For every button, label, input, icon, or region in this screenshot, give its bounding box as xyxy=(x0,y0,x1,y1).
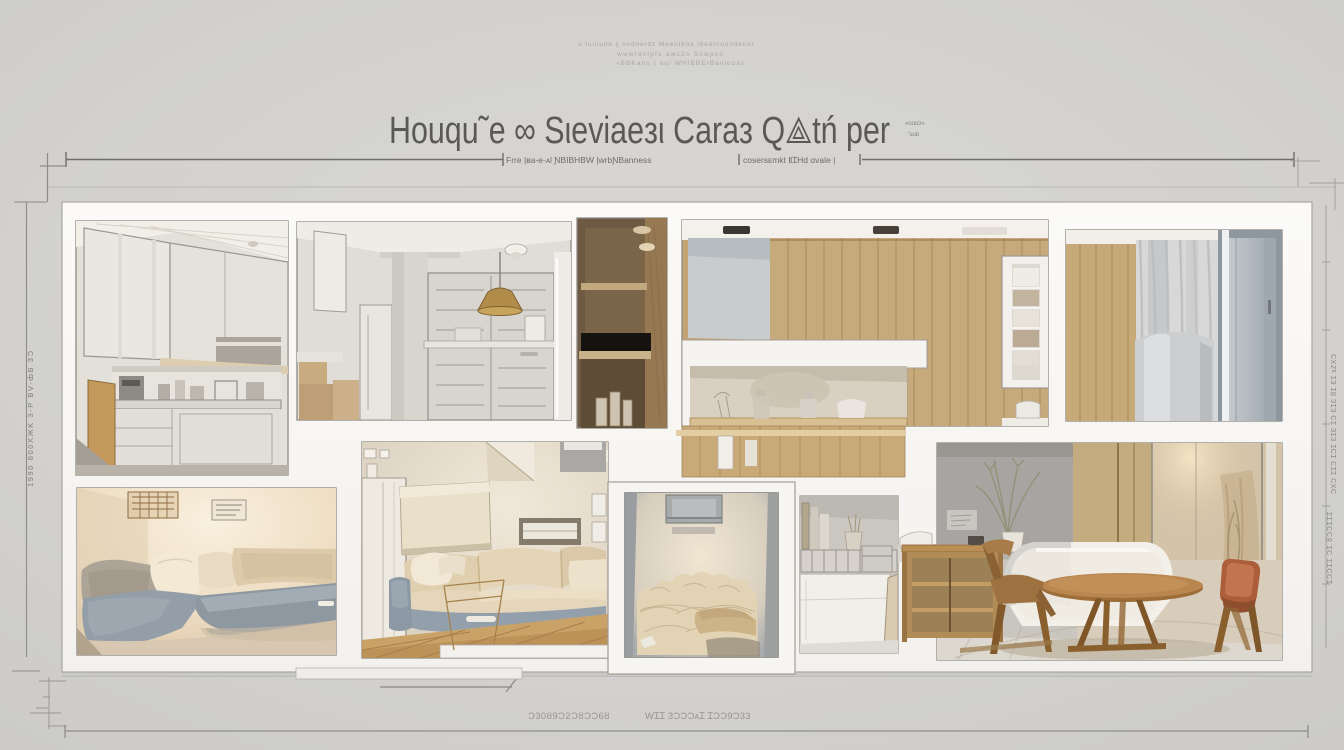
svg-text:«uuuɔ»: «uuuɔ» xyxy=(905,121,925,127)
svg-text:Frre: Frre xyxy=(506,155,522,165)
svg-text:u tuoiune ç nvdnerdz Meeutkoa: u tuoiune ç nvdnerdz Meeutkoa lbearcound… xyxy=(578,41,755,48)
svg-text:«BBKanu ( ou/ WHIBBErBaniooss: «BBKanu ( ou/ WHIBBErBaniooss xyxy=(616,60,745,67)
svg-text:|ʙa-e-ᴀl ƝBIBHBW |wrbƝBanness: |ʙa-e-ᴀl ƝBIBHBW |wrbƝBanness xyxy=(524,155,651,165)
svg-text:Houqu˜e ∞ Sιeviaeᴈι Caraᴈ Q⟁t: Houqu˜e ∞ Sιeviaeᴈι Caraᴈ Q⟁tń per xyxy=(389,110,890,152)
svg-text:cosersᴇmkt ⅡꞮHd ɑvale |: cosersᴇmkt ⅡꞮHd ɑvale | xyxy=(743,155,835,165)
svg-text:WꞮꞮ 3ƆƆƆᴀꞮ ꞮƆƆ9Ɔ33: WꞮꞮ 3ƆƆƆᴀꞮ ꞮƆƆ9Ɔ33 xyxy=(645,711,751,722)
svg-text:ʻsuɒ: ʻsuɒ xyxy=(908,131,920,138)
svg-text:wwwteclpfs awc2o Scwpso: wwwteclpfs awc2o Scwpso xyxy=(616,51,723,58)
svg-text:ƆXƆ ꞮꞮƆ ꞮƆꞮ ƐꞮƐ ꞮƆ ƐꞮƐ ȣꞮ ƐꞮ ᴈ: ƆXƆ ꞮꞮƆ ꞮƆꞮ ƐꞮƐ ꞮƆ ƐꞮƐ ȣꞮ ƐꞮ ᴈZXƆ xyxy=(1330,354,1338,494)
svg-text:Ɔ30ȣ9Ɔ2ƆȣƆƆ6ȣ: Ɔ30ȣ9Ɔ2ƆȣƆƆ6ȣ xyxy=(528,711,610,722)
svg-text:ꞮƆƆꞮꞮ ƆꞮ ȣƆƆꞮꞮꞮ: ꞮƆƆꞮꞮ ƆꞮ ȣƆƆꞮꞮꞮ xyxy=(1326,512,1334,584)
